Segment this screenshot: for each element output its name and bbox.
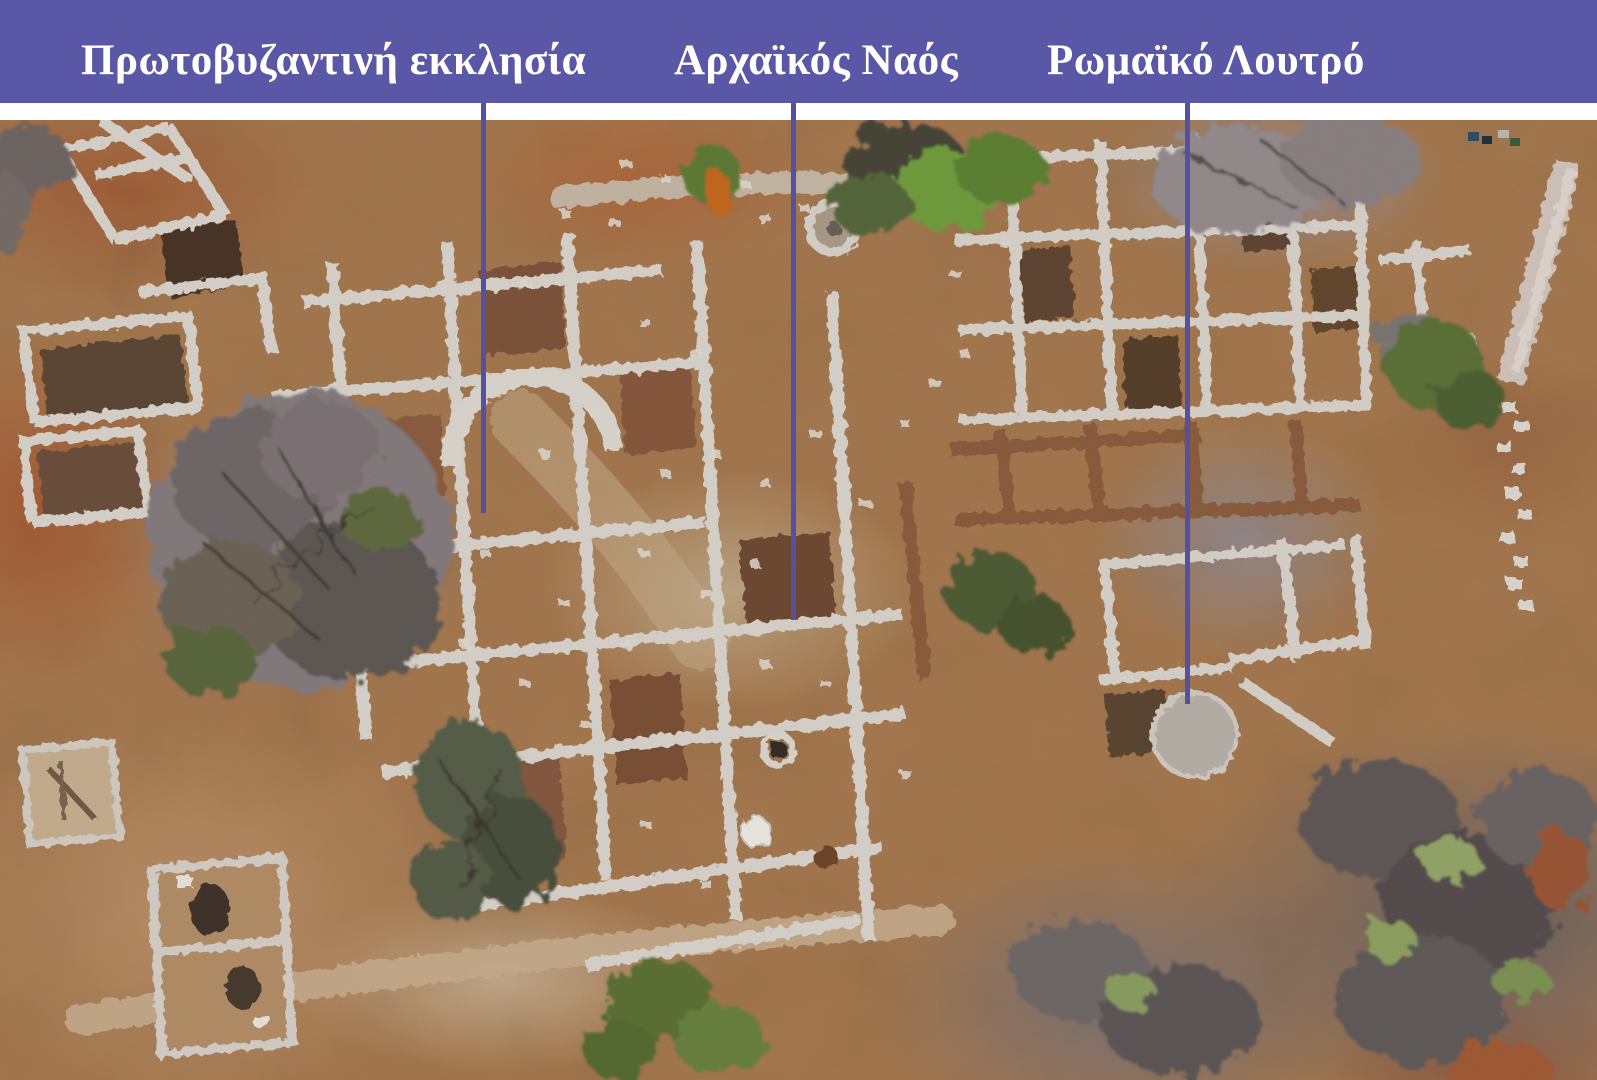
excavation-overlay bbox=[0, 120, 1597, 1080]
figure: Πρωτοβυζαντινή εκκλησία Αρχαϊκός Ναός Ρω… bbox=[0, 0, 1597, 1080]
banner: Πρωτοβυζαντινή εκκλησία Αρχαϊκός Ναός Ρω… bbox=[0, 0, 1597, 103]
grain-overlay bbox=[0, 120, 1597, 1080]
leader-line-temple bbox=[791, 103, 796, 620]
aerial-photo bbox=[0, 120, 1597, 1080]
label-roman-bath: Ρωμαϊκό Λουτρό bbox=[1047, 37, 1365, 84]
label-early-byzantine-church: Πρωτοβυζαντινή εκκλησία bbox=[81, 37, 586, 84]
leader-line-bath bbox=[1185, 103, 1190, 704]
label-archaic-temple: Αρχαϊκός Ναός bbox=[674, 37, 958, 84]
leader-line-church bbox=[481, 103, 486, 513]
